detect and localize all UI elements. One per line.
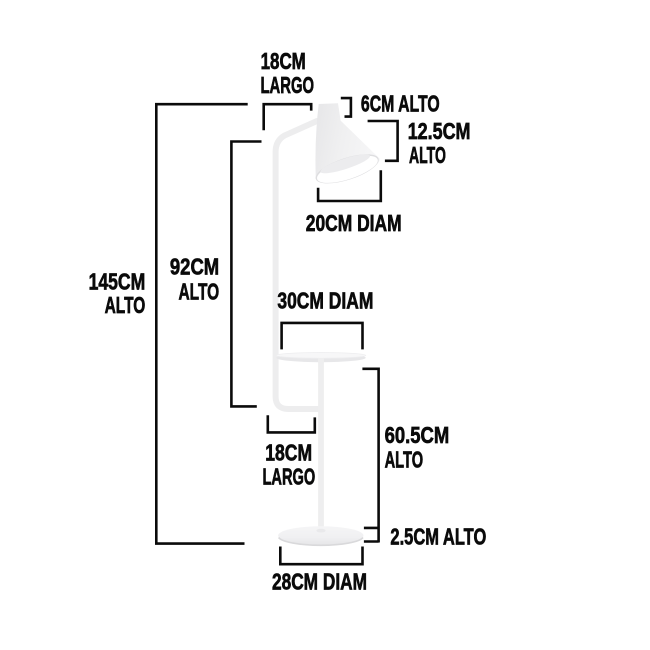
svg-text:18CM: 18CM	[261, 48, 306, 74]
svg-text:ALTO: ALTO	[105, 292, 146, 318]
svg-text:LARGO: LARGO	[261, 72, 315, 98]
svg-text:LARGO: LARGO	[263, 463, 316, 489]
svg-text:92CM: 92CM	[170, 254, 219, 280]
svg-text:12.5CM: 12.5CM	[408, 118, 471, 144]
svg-text:2.5CM ALTO: 2.5CM ALTO	[390, 523, 486, 549]
svg-text:60.5CM: 60.5CM	[385, 422, 450, 448]
svg-text:28CM DIAM: 28CM DIAM	[272, 569, 367, 595]
svg-text:145CM: 145CM	[89, 268, 146, 294]
svg-text:6CM ALTO: 6CM ALTO	[361, 90, 440, 116]
svg-text:ALTO: ALTO	[385, 447, 424, 473]
svg-text:18CM: 18CM	[265, 439, 312, 465]
svg-text:30CM DIAM: 30CM DIAM	[277, 287, 373, 313]
svg-text:20CM DIAM: 20CM DIAM	[306, 210, 402, 236]
svg-text:ALTO: ALTO	[409, 142, 446, 168]
svg-text:ALTO: ALTO	[179, 278, 220, 304]
